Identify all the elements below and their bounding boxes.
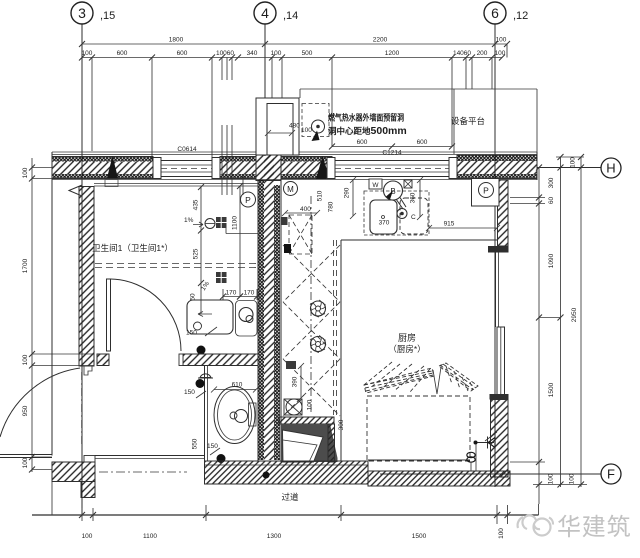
svg-text:100: 100: [498, 528, 505, 539]
svg-text:400: 400: [300, 206, 311, 213]
svg-text:100: 100: [307, 399, 314, 410]
svg-text:100: 100: [548, 473, 555, 484]
svg-text:100: 100: [570, 157, 577, 168]
svg-text:4: 4: [261, 5, 269, 21]
svg-text:P: P: [245, 195, 251, 205]
svg-text:780: 780: [328, 201, 335, 212]
svg-text:100: 100: [495, 50, 506, 57]
svg-text:150: 150: [184, 389, 195, 396]
svg-text:600: 600: [357, 139, 368, 146]
svg-text:360: 360: [410, 192, 417, 203]
svg-text:3: 3: [78, 5, 86, 21]
svg-text:170: 170: [226, 290, 237, 297]
svg-text:2200: 2200: [373, 37, 388, 44]
svg-text:100: 100: [22, 457, 29, 468]
svg-text:200: 200: [477, 50, 488, 57]
svg-text:100: 100: [22, 354, 29, 365]
svg-text:150: 150: [207, 443, 218, 450]
svg-text:设备平台: 设备平台: [451, 116, 485, 126]
svg-text:M: M: [287, 185, 294, 194]
svg-text:1300: 1300: [267, 533, 282, 540]
svg-text:435: 435: [193, 199, 200, 210]
svg-text:C0614: C0614: [177, 146, 197, 153]
svg-text:F: F: [607, 467, 615, 482]
svg-text:950: 950: [22, 405, 29, 416]
svg-text:1%: 1%: [184, 217, 194, 224]
svg-text:洞中心距地500mm: 洞中心距地500mm: [328, 125, 407, 137]
svg-text:（厨房*）: （厨房*）: [388, 344, 425, 354]
svg-text:1500: 1500: [548, 382, 555, 397]
svg-text:60: 60: [548, 197, 555, 205]
svg-text:170: 170: [244, 290, 255, 297]
svg-text:550: 550: [192, 438, 199, 449]
svg-text:1090: 1090: [548, 253, 555, 268]
svg-text:290: 290: [344, 187, 351, 198]
svg-text:1800: 1800: [169, 37, 184, 44]
svg-text:10060: 10060: [216, 50, 234, 57]
svg-text:1700: 1700: [22, 258, 29, 273]
svg-text:2950: 2950: [571, 307, 578, 322]
svg-text:370: 370: [379, 220, 390, 227]
svg-text:525: 525: [193, 248, 200, 259]
svg-text:100: 100: [82, 533, 93, 540]
svg-text:340: 340: [247, 50, 258, 57]
svg-text:600: 600: [117, 50, 128, 57]
svg-text:14060: 14060: [453, 50, 471, 57]
svg-text:300: 300: [338, 419, 345, 430]
svg-text:H: H: [606, 161, 615, 176]
svg-text:过道: 过道: [281, 492, 299, 502]
svg-text:华建筑: 华建筑: [557, 514, 631, 541]
svg-text:P: P: [483, 185, 489, 195]
svg-text:100: 100: [82, 50, 93, 57]
svg-text:C1214: C1214: [382, 150, 402, 157]
svg-text:,12: ,12: [513, 10, 528, 22]
svg-text:610: 610: [232, 382, 243, 389]
svg-text:1100: 1100: [232, 216, 239, 230]
svg-text:6: 6: [491, 5, 499, 21]
svg-text:100: 100: [569, 473, 576, 484]
svg-text:1500: 1500: [412, 533, 427, 540]
svg-text:480: 480: [289, 123, 300, 130]
svg-text:100: 100: [496, 37, 507, 44]
svg-text:600: 600: [177, 50, 188, 57]
svg-text:510: 510: [317, 190, 324, 201]
svg-text:300: 300: [548, 177, 555, 188]
svg-text:燃气热水器外墙面预留洞: 燃气热水器外墙面预留洞: [328, 113, 404, 123]
svg-text:100: 100: [22, 167, 29, 178]
svg-text:100: 100: [271, 50, 282, 57]
svg-text:150: 150: [186, 330, 197, 337]
svg-text:1200: 1200: [385, 50, 400, 57]
svg-text:W: W: [372, 182, 379, 189]
svg-text:600: 600: [417, 139, 428, 146]
svg-text:厨房: 厨房: [398, 332, 416, 343]
svg-text:C: C: [411, 214, 416, 221]
svg-text:1100: 1100: [143, 533, 157, 540]
svg-text:915: 915: [444, 221, 455, 228]
svg-text:100: 100: [301, 127, 312, 134]
svg-text:,14: ,14: [283, 10, 298, 22]
svg-text:500: 500: [302, 50, 313, 57]
svg-text:390: 390: [292, 376, 299, 387]
svg-text:,15: ,15: [100, 10, 115, 22]
svg-text:卫生间1（卫生间1*）: 卫生间1（卫生间1*）: [92, 243, 173, 253]
